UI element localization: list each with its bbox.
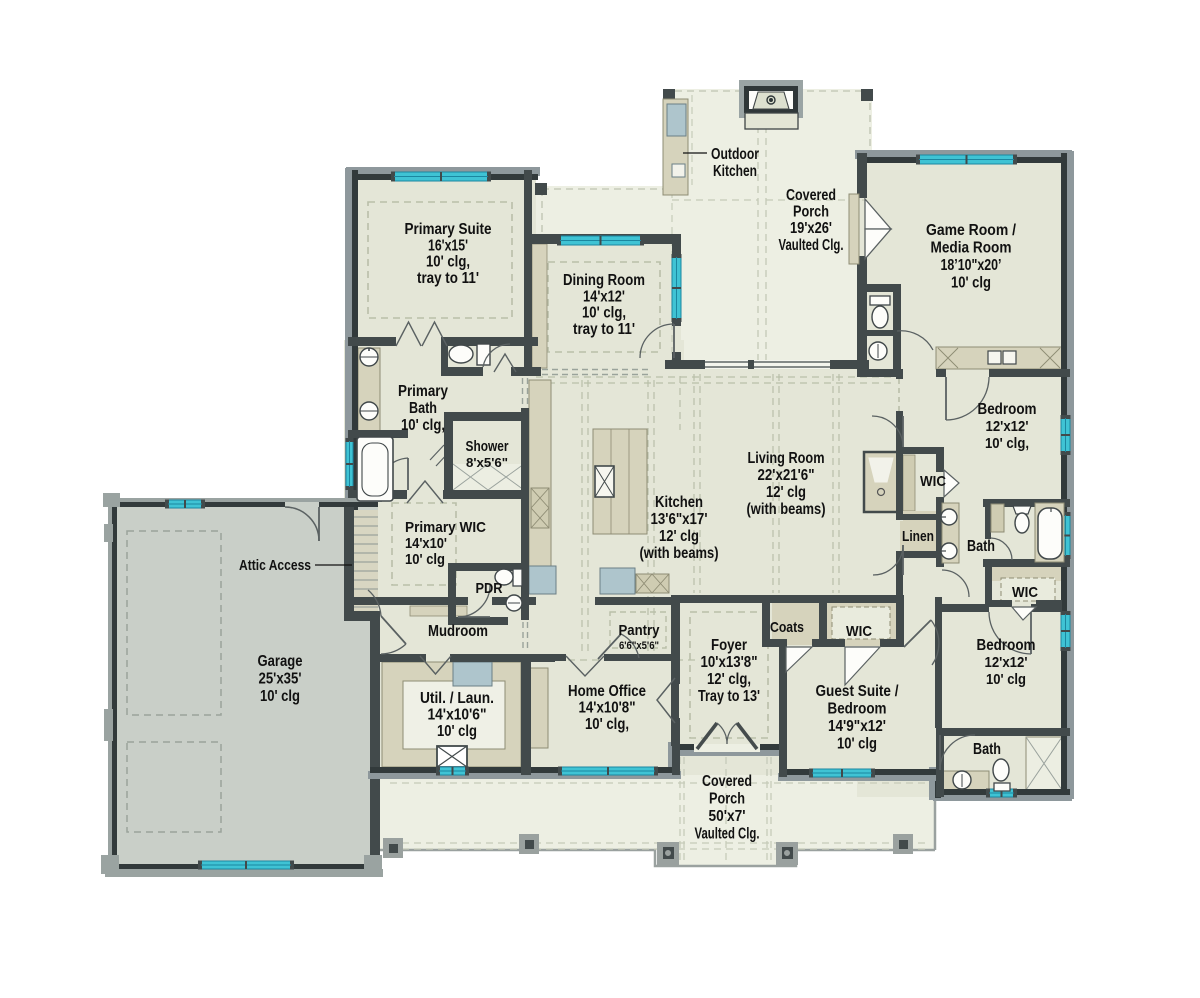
svg-text:Bedroom: Bedroom: [978, 401, 1037, 418]
svg-text:19'x26': 19'x26': [790, 220, 832, 237]
svg-text:10' clg: 10' clg: [437, 723, 477, 740]
svg-text:14'x10'8": 14'x10'8": [579, 700, 636, 717]
svg-text:Home Office: Home Office: [568, 683, 646, 700]
svg-text:Coats: Coats: [770, 619, 804, 636]
svg-text:Mudroom: Mudroom: [428, 623, 488, 640]
svg-text:Attic Access: Attic Access: [239, 557, 311, 574]
svg-text:Living Room: Living Room: [748, 450, 825, 467]
svg-text:10' clg: 10' clg: [837, 736, 877, 753]
svg-text:Garage: Garage: [258, 653, 303, 670]
svg-text:tray to 11': tray to 11': [417, 270, 479, 287]
svg-text:Tray to 13': Tray to 13': [698, 688, 760, 705]
svg-text:WIC: WIC: [1012, 584, 1038, 601]
svg-text:14'x10'6": 14'x10'6": [428, 707, 487, 724]
svg-text:10' clg: 10' clg: [405, 551, 445, 568]
svg-text:Shower: Shower: [466, 439, 509, 455]
svg-text:WIC: WIC: [846, 623, 872, 640]
svg-text:10' clg: 10' clg: [986, 671, 1026, 688]
svg-text:Foyer: Foyer: [711, 637, 747, 654]
svg-text:8'x5'6": 8'x5'6": [466, 455, 508, 470]
svg-text:Covered: Covered: [702, 773, 752, 790]
svg-text:13'6"x17': 13'6"x17': [651, 511, 708, 528]
svg-text:Primary WIC: Primary WIC: [405, 519, 486, 536]
svg-text:6'6"x5'6": 6'6"x5'6": [619, 640, 659, 652]
svg-text:14'9"x12': 14'9"x12': [828, 718, 886, 735]
svg-text:Covered: Covered: [786, 187, 836, 204]
svg-text:Porch: Porch: [793, 204, 829, 221]
svg-text:10' clg: 10' clg: [260, 688, 300, 705]
svg-text:Bedroom: Bedroom: [828, 701, 887, 718]
svg-text:WIC: WIC: [920, 473, 946, 490]
svg-text:Bath: Bath: [973, 741, 1001, 758]
svg-text:Pantry: Pantry: [619, 622, 661, 639]
svg-text:Outdoor: Outdoor: [711, 146, 759, 163]
svg-text:14'x12': 14'x12': [583, 288, 625, 305]
svg-text:10'x13'8": 10'x13'8": [701, 654, 758, 671]
svg-text:18’10"x20’: 18’10"x20’: [941, 257, 1002, 274]
svg-text:Dining Room: Dining Room: [563, 272, 645, 289]
svg-text:Vaulted Clg.: Vaulted Clg.: [779, 237, 844, 254]
svg-text:Vaulted Clg.: Vaulted Clg.: [695, 826, 760, 843]
svg-text:16'x15': 16'x15': [428, 237, 468, 254]
svg-text:Util. / Laun.: Util. / Laun.: [420, 690, 494, 707]
svg-text:Media Room: Media Room: [931, 240, 1012, 257]
svg-text:12'x12': 12'x12': [986, 418, 1029, 435]
svg-text:10' clg,: 10' clg,: [582, 305, 626, 322]
svg-text:12' clg: 12' clg: [659, 528, 699, 545]
svg-text:25'x35': 25'x35': [259, 671, 302, 688]
svg-text:PDR: PDR: [476, 580, 503, 597]
svg-text:12' clg: 12' clg: [766, 484, 806, 501]
svg-text:12'x12': 12'x12': [985, 654, 1028, 671]
svg-text:(with beams): (with beams): [747, 501, 826, 518]
svg-text:Primary: Primary: [398, 383, 448, 400]
svg-text:Primary Suite: Primary Suite: [405, 221, 492, 238]
svg-text:10' clg,: 10' clg,: [985, 435, 1029, 452]
svg-text:(with beams): (with beams): [640, 545, 719, 562]
svg-text:10' clg,: 10' clg,: [585, 716, 629, 733]
svg-text:50'x7': 50'x7': [709, 808, 746, 825]
svg-text:Guest Suite /: Guest Suite /: [816, 683, 899, 700]
svg-text:Linen: Linen: [902, 529, 934, 545]
svg-text:Kitchen: Kitchen: [713, 163, 757, 180]
svg-text:10' clg,: 10' clg,: [426, 254, 470, 271]
svg-text:Porch: Porch: [709, 791, 745, 808]
svg-text:10' clg,: 10' clg,: [401, 417, 445, 434]
svg-text:22'x21'6": 22'x21'6": [758, 467, 815, 484]
svg-text:Bath: Bath: [967, 538, 995, 555]
svg-text:Bedroom: Bedroom: [977, 637, 1036, 654]
svg-text:12' clg,: 12' clg,: [707, 671, 751, 688]
svg-text:Game Room /: Game Room /: [926, 222, 1016, 239]
svg-text:Kitchen: Kitchen: [655, 494, 703, 511]
svg-text:Bath: Bath: [409, 400, 437, 417]
svg-text:14'x10': 14'x10': [405, 535, 447, 552]
svg-text:tray to 11': tray to 11': [573, 321, 635, 338]
svg-text:10' clg: 10' clg: [951, 275, 991, 292]
